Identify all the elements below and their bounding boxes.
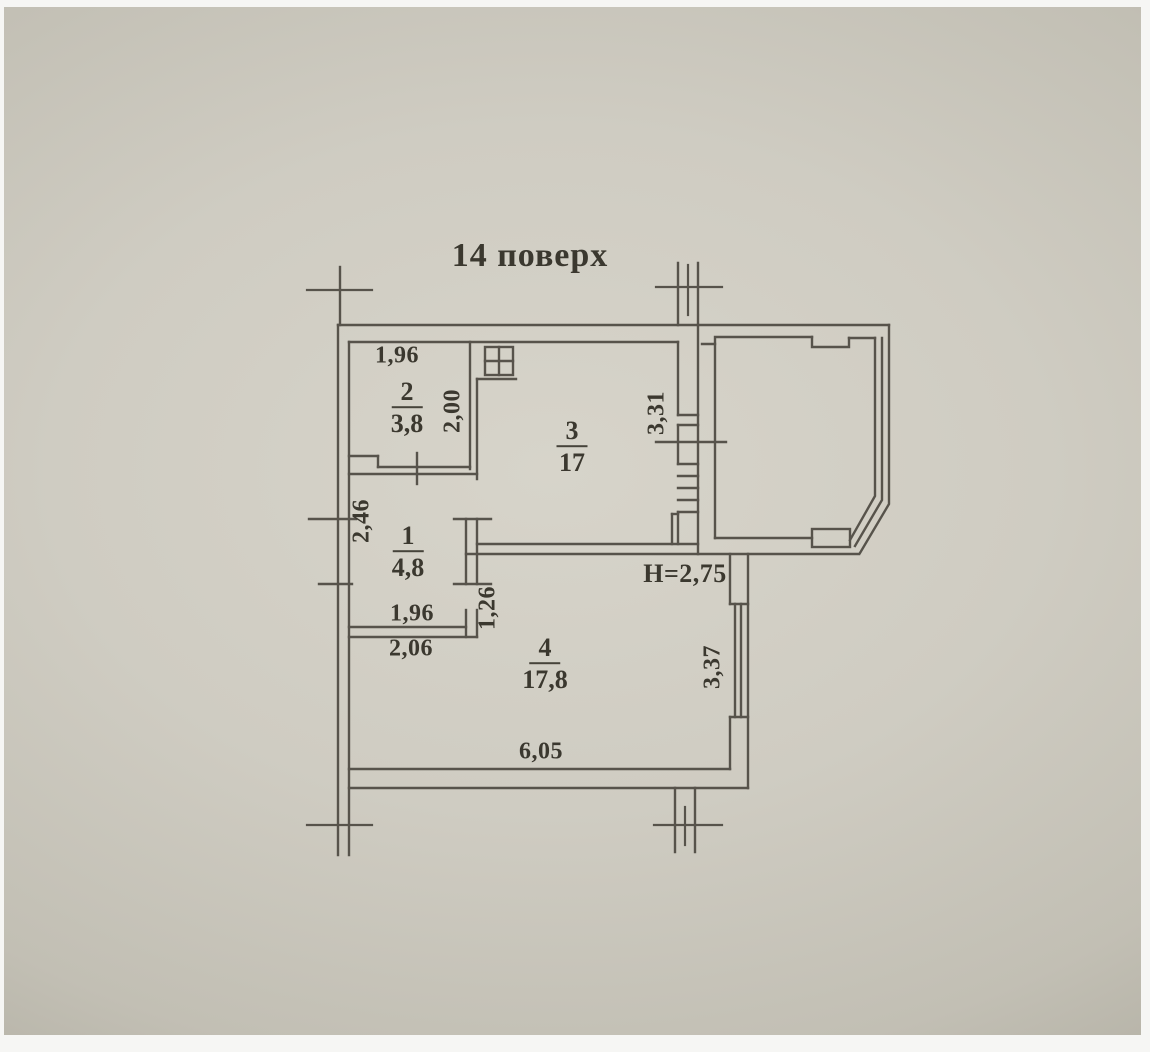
room-2-height-dim: 2,00	[440, 389, 467, 433]
room-1-area: 4,8	[392, 553, 425, 582]
ceiling-height-note: Н=2,75	[643, 559, 727, 589]
room-1-width-inner-dim: 1,96	[390, 601, 434, 628]
room-4-number: 4	[530, 634, 561, 664]
room-4-area: 17,8	[522, 665, 568, 694]
room-1-width-outer-dim: 2,06	[389, 636, 433, 663]
room-4-label: 4 17,8	[522, 634, 568, 694]
room-3-bottom-wall	[466, 544, 859, 554]
room-3-number: 3	[557, 417, 588, 447]
room-3-height-dim: 3,31	[644, 391, 671, 435]
room-4-window	[730, 554, 748, 769]
room-4-right-dim: 3,37	[700, 645, 727, 689]
page-title: 14 поверх	[452, 237, 609, 275]
room-1-label: 1 4,8	[392, 522, 425, 582]
floor-plan-drawing	[4, 7, 1150, 1052]
room-2-width-dim: 1,96	[375, 343, 419, 370]
room-2-number: 2	[392, 378, 423, 408]
floor-plan: 14 поверх 1,96 2 3,8 2,00 3 17 3,31 2,46…	[4, 7, 1141, 1035]
room-1-height-dim: 2,46	[349, 499, 376, 543]
room-3-label: 3 17	[557, 417, 588, 477]
room-1-number: 1	[393, 522, 424, 552]
passage-width-dim: 1,26	[475, 586, 502, 630]
room-2-area: 3,8	[391, 409, 424, 438]
room-3-area: 17	[559, 448, 585, 477]
room-2-label: 2 3,8	[391, 378, 424, 438]
vent-shaft-icon	[477, 347, 516, 379]
scanned-page: 14 поверх 1,96 2 3,8 2,00 3 17 3,31 2,46…	[4, 7, 1141, 1035]
balcony-walls	[702, 325, 889, 553]
room-4-width-dim: 6,05	[519, 739, 563, 766]
